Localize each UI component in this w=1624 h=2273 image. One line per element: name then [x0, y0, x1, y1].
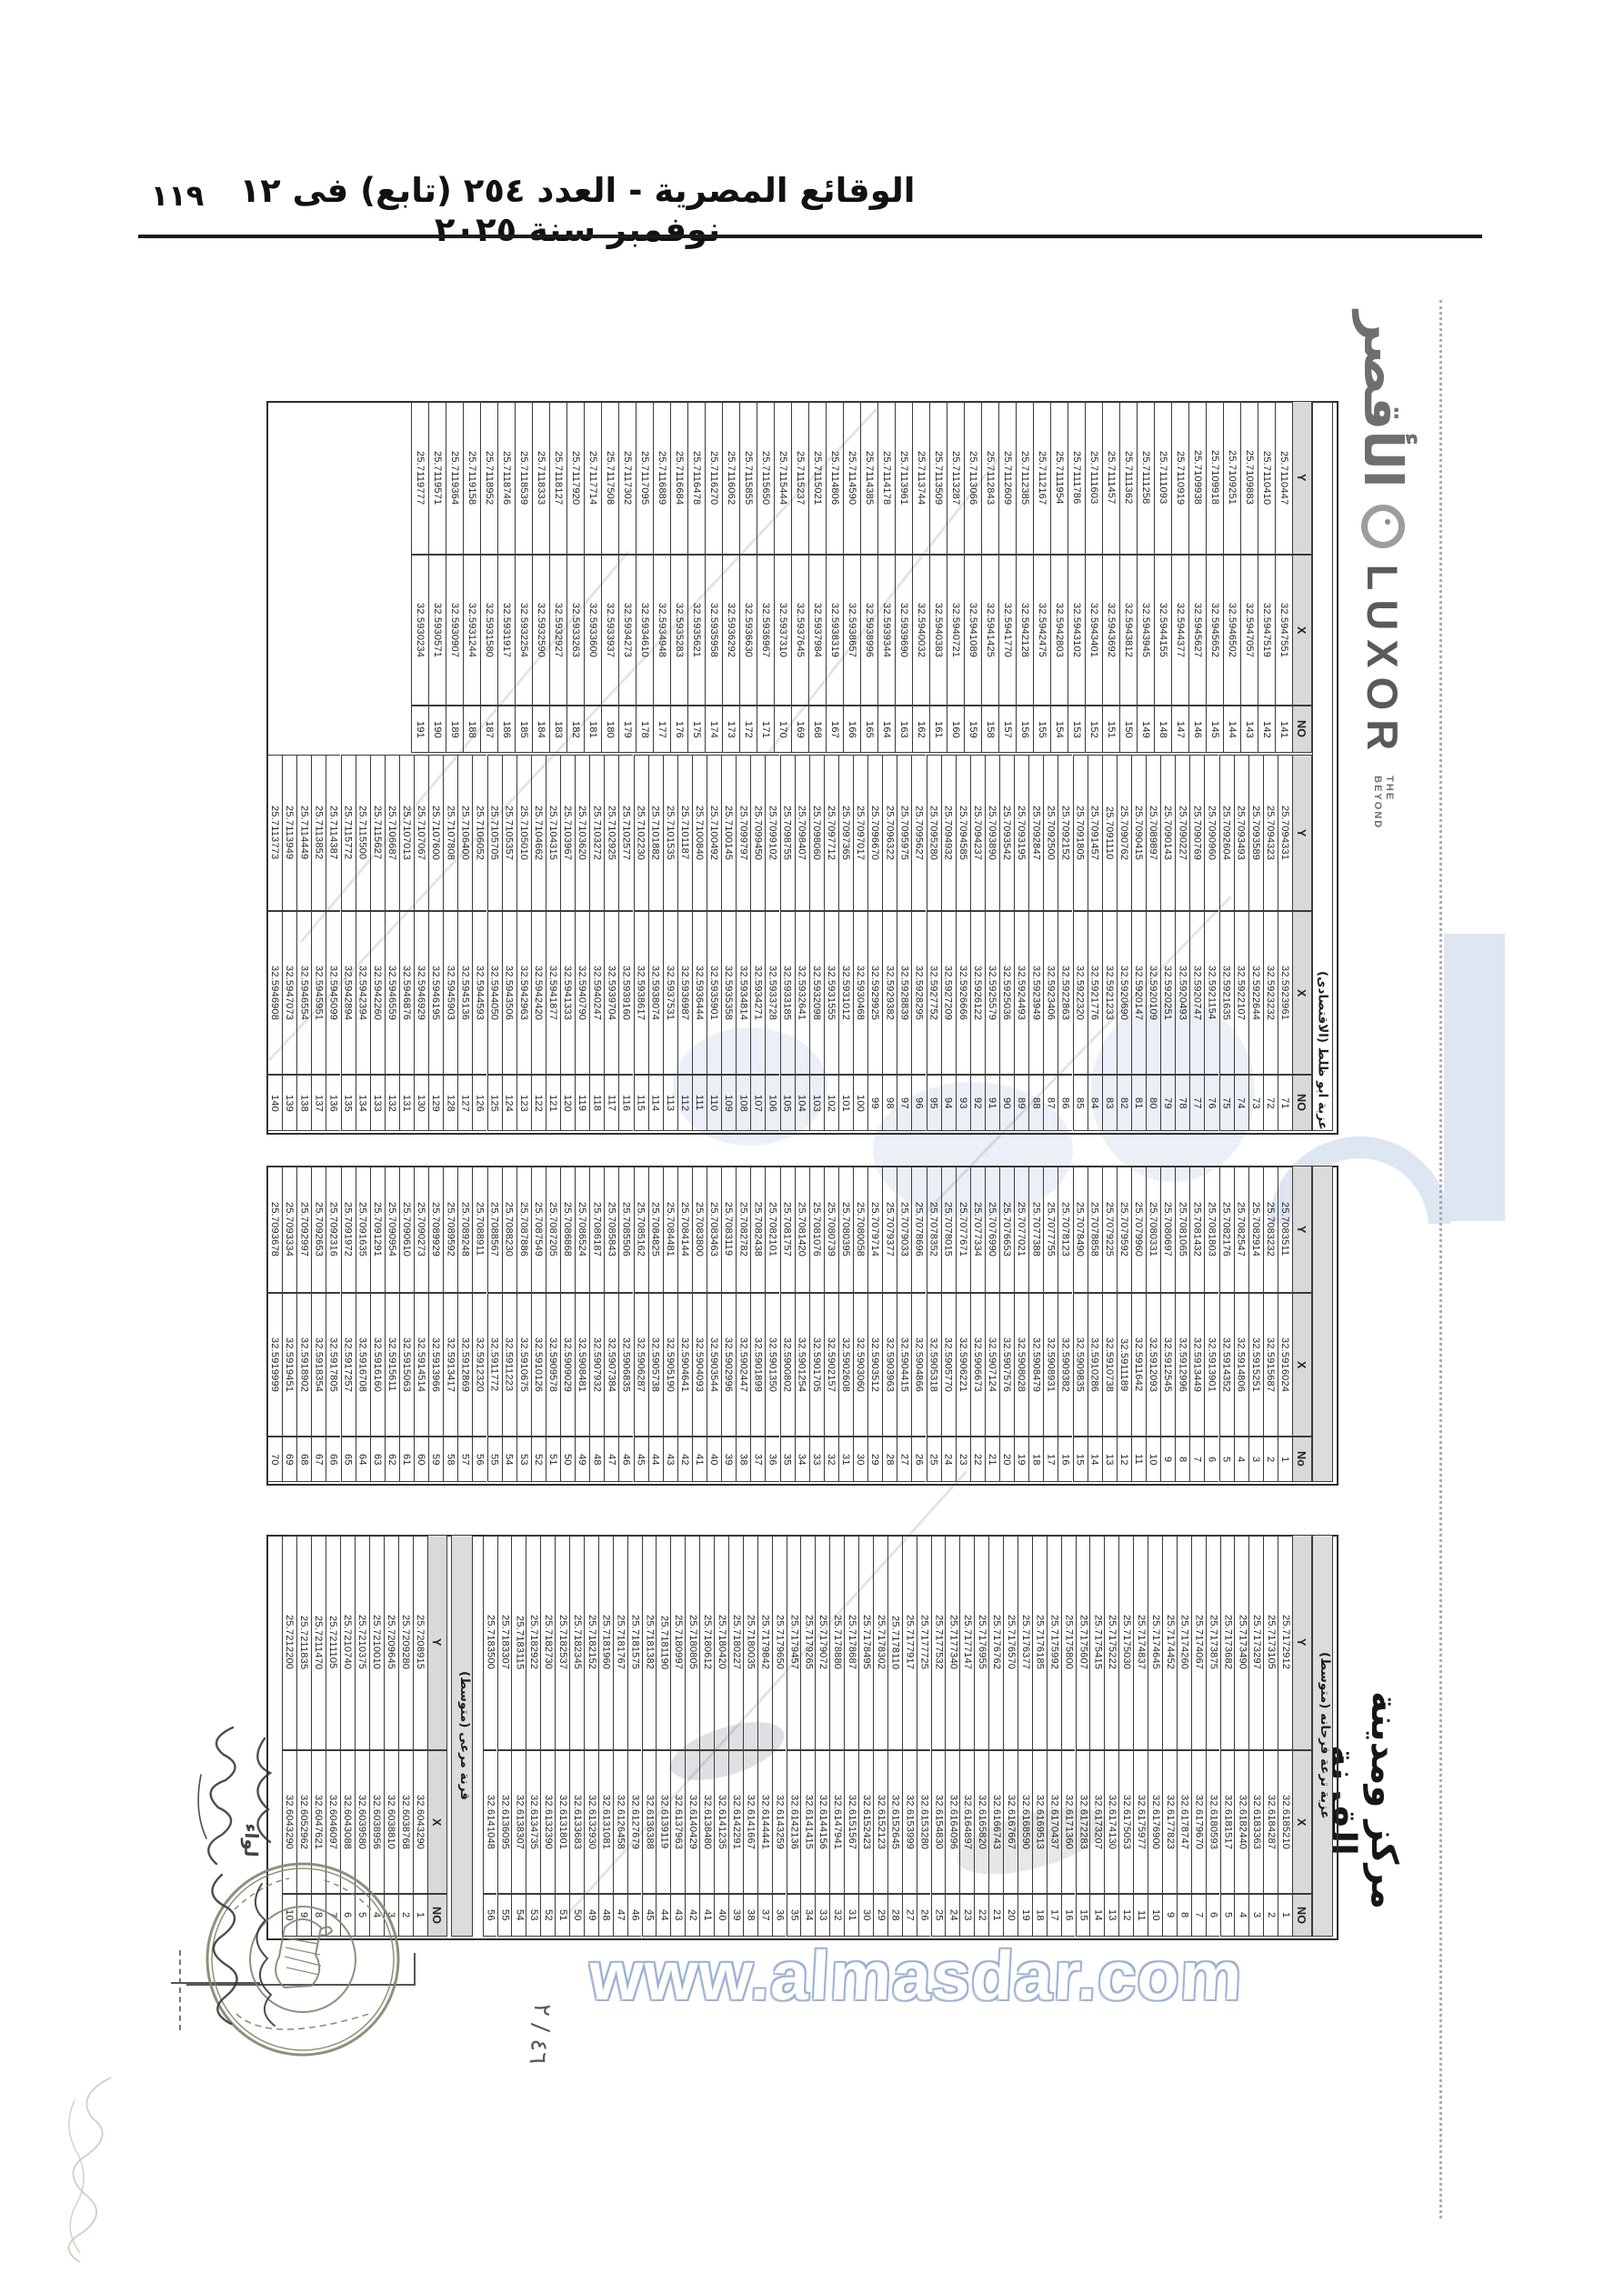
y-value: 25.7090227 [1176, 755, 1189, 911]
x-value: 32.5944377 [1172, 555, 1188, 706]
x-value: 32.5943945 [1138, 555, 1154, 706]
y-value: 25.7178495 [859, 1535, 873, 1750]
pencil-scribble [47, 2073, 129, 2264]
coordinate-row: 25.717464532.617690010 [1148, 1535, 1162, 1937]
header-cell: No [1293, 1437, 1312, 1482]
x-value: 32.5926122 [971, 911, 985, 1075]
x-value: 32.5909029 [561, 1293, 575, 1437]
y-value: 25.7110410 [1258, 401, 1275, 555]
coordinate-row: 25.708380032.590409341 [692, 1166, 707, 1482]
y-value: 25.7211835 [297, 1535, 311, 1750]
coordinate-row: 25.711730232.5934273179 [618, 401, 636, 753]
y-value: 25.7115237 [792, 401, 808, 555]
point-number: 142 [1258, 706, 1275, 753]
coordinate-row: 25.711577232.5942894135 [341, 755, 356, 1131]
x-value: 32.6043290 [414, 1750, 427, 1894]
x-value: 32.6131081 [599, 1750, 613, 1894]
x-value: 32.6153280 [917, 1750, 931, 1894]
point-number: 2 [1264, 1437, 1278, 1482]
x-value: 32.6172283 [1077, 1750, 1090, 1894]
coordinate-row: 25.710257732.5939160116 [618, 755, 633, 1131]
y-value: 25.7095975 [897, 755, 911, 911]
point-number: 57 [458, 1437, 472, 1482]
coordinate-row: 25.708243832.590189937 [750, 1166, 765, 1482]
x-value: 32.5934948 [654, 555, 670, 706]
point-number: 22 [975, 1894, 988, 1937]
x-value: 32.6171360 [1062, 1750, 1076, 1894]
coordinate-row: 25.708788632.591067553 [516, 1166, 531, 1482]
coordinate-row: 25.711238532.5942128156 [1016, 401, 1033, 753]
x-value: 32.6185210 [1278, 1750, 1292, 1894]
coordinate-row: 25.711109332.5944155148 [1154, 401, 1171, 753]
point-number: 86 [1058, 1075, 1072, 1131]
x-value: 32.5912320 [473, 1293, 486, 1437]
coordinate-row: 25.709076232.592069082 [1117, 755, 1131, 1131]
coordinate-row: 25.709129132.591616063 [370, 1166, 385, 1482]
header-cell: Y [1293, 1535, 1312, 1750]
point-number: 141 [1276, 706, 1292, 753]
y-value: 25.7116478 [688, 401, 705, 555]
column-header: YXNO [427, 1535, 447, 1937]
x-value: 32.5923961 [1278, 911, 1292, 1075]
x-value: 32.6175053 [1119, 1750, 1133, 1894]
coordinate-row: 25.708106532.59129968 [1175, 1166, 1189, 1482]
coordinate-row: 25.711688932.5934948177 [653, 401, 670, 753]
point-number: 85 [1074, 1075, 1088, 1131]
point-number: 24 [942, 1437, 956, 1482]
y-value: 25.7211105 [326, 1535, 340, 1750]
y-value: 25.7078123 [1058, 1166, 1072, 1293]
y-value: 25.7179265 [801, 1535, 815, 1750]
x-value: 32.5920690 [1118, 911, 1131, 1075]
coordinate-row: 25.717753232.615483025 [931, 1535, 946, 1937]
x-value: 32.5942803 [1051, 555, 1068, 706]
y-value: 25.7081065 [1176, 1166, 1189, 1293]
y-value: 25.7098060 [810, 755, 824, 911]
y-value: 25.7176570 [1004, 1535, 1018, 1750]
x-value: 32.5921635 [1220, 911, 1234, 1075]
coordinate-row: 25.710988332.5947057143 [1240, 401, 1258, 753]
y-value: 25.7091457 [1088, 755, 1102, 911]
point-number: 134 [356, 1075, 370, 1131]
y-value: 25.7115021 [809, 401, 826, 555]
x-value: 32.6141667 [744, 1750, 757, 1894]
crop-mark [414, 1953, 416, 1986]
coordinate-row: 25.709701732.5930468100 [853, 755, 867, 1131]
x-value: 32.5943401 [1086, 555, 1102, 706]
point-number: 59 [429, 1437, 443, 1482]
y-value: 25.7083119 [722, 1166, 736, 1293]
x-value: 32.5945136 [458, 911, 472, 1075]
y-value: 25.7101187 [678, 755, 692, 911]
y-value: 25.7180997 [671, 1535, 685, 1750]
x-value: 32.5937645 [792, 555, 808, 706]
point-number: 136 [326, 1075, 340, 1131]
x-value: 32.5936444 [693, 911, 707, 1075]
y-value: 25.7085843 [605, 1166, 618, 1293]
y-value: 25.7103967 [561, 755, 575, 911]
point-number: 32 [830, 1894, 844, 1937]
point-number: 9 [1163, 1894, 1177, 1937]
coordinate-row: 25.717599232.617043717 [1047, 1535, 1061, 1937]
coordinate-row: 25.708278232.590244738 [736, 1166, 750, 1482]
y-value: 25.7081432 [1190, 1166, 1204, 1293]
y-value: 25.7085162 [635, 1166, 648, 1293]
coordinate-row: 25.717772532.615328026 [917, 1535, 931, 1937]
coordinate-row: 25.709493232.592720994 [941, 755, 956, 1131]
x-value: 32.5935958 [706, 555, 722, 706]
y-value: 25.7180805 [686, 1535, 699, 1750]
table-title-strip: عزبة ابو ظلط (الاقتصادى) [1312, 401, 1333, 1131]
x-value: 32.5916708 [356, 1293, 370, 1437]
point-number: 4 [1235, 1437, 1248, 1482]
x-value: 32.5928295 [912, 911, 926, 1075]
coordinate-row: 25.707812332.590938216 [1058, 1166, 1072, 1482]
column-header: YXNO [1292, 401, 1312, 753]
x-value: 32.5941089 [965, 555, 981, 706]
x-value: 32.5903512 [868, 1293, 882, 1437]
point-number: 53 [517, 1437, 531, 1482]
x-value: 32.5922107 [1235, 911, 1248, 1075]
y-value: 25.7209645 [385, 1535, 398, 1750]
x-value: 32.6136095 [498, 1750, 512, 1894]
coordinate-row: 25.717907232.614415633 [815, 1535, 829, 1937]
x-value: 32.5914352 [1220, 1293, 1234, 1437]
point-number: 152 [1086, 706, 1102, 753]
coordinate-row: 25.717618532.616951318 [1032, 1535, 1047, 1937]
y-value: 25.7178687 [845, 1535, 858, 1750]
x-value: 32.5925036 [1000, 911, 1014, 1075]
y-value: 25.7115855 [740, 401, 757, 555]
y-value: 25.7090273 [415, 1166, 428, 1293]
x-value: 32.5930571 [429, 555, 446, 706]
x-value: 32.6153999 [903, 1750, 917, 1894]
y-value: 25.7175222 [1105, 1535, 1118, 1750]
x-value: 32.5901254 [796, 1293, 809, 1437]
point-number: 28 [888, 1894, 902, 1937]
x-value: 32.5938074 [649, 911, 663, 1075]
x-value: 32.6182440 [1235, 1750, 1248, 1894]
point-number: 71 [1278, 1075, 1292, 1131]
point-number: 170 [775, 706, 791, 753]
header-cell: Y [428, 1535, 447, 1750]
x-value: 32.5942260 [371, 911, 385, 1075]
coordinate-row: 25.708210132.590135036 [765, 1166, 779, 1482]
point-number: 21 [989, 1894, 1003, 1937]
y-value: 25.7119571 [429, 401, 446, 555]
point-number: 181 [585, 706, 601, 753]
coordinate-row: 25.711377332.5946908140 [267, 755, 282, 1131]
coordinate-row: 25.711750832.5933937180 [601, 401, 618, 753]
y-value: 25.7117508 [602, 401, 618, 555]
x-value: 32.5937531 [664, 911, 677, 1075]
coordinate-row: 25.710760032.5946195129 [428, 755, 443, 1131]
y-value: 25.7105357 [503, 755, 516, 911]
coordinate-row: 25.708107632.590170533 [809, 1166, 824, 1482]
coordinate-row: 25.709458532.592666693 [956, 755, 970, 1131]
coordinate-row: 25.710668732.5946559132 [385, 755, 399, 1131]
header-cell: X [1293, 1750, 1312, 1894]
x-value: 32.5926666 [957, 911, 970, 1075]
point-number: 51 [546, 1437, 560, 1482]
y-value: 25.7092604 [1220, 755, 1234, 911]
x-value: 32.6169513 [1033, 1750, 1047, 1894]
point-number: 46 [628, 1894, 642, 1937]
x-value: 32.5932641 [796, 911, 809, 1075]
y-value: 25.7110447 [1276, 401, 1292, 555]
point-number: 92 [971, 1075, 985, 1131]
coordinate-row: 25.708005832.590306030 [853, 1166, 867, 1482]
point-number: 80 [1147, 1075, 1160, 1131]
point-number: 11 [1134, 1894, 1148, 1937]
point-number: 69 [283, 1437, 296, 1482]
x-value: 32.6141235 [715, 1750, 728, 1894]
x-value: 32.6179670 [1192, 1750, 1206, 1894]
x-value: 32.5932590 [533, 555, 549, 706]
page-number: ١١٩ [136, 178, 218, 213]
point-number: 184 [533, 706, 549, 753]
coordinate-row: 25.711396132.5939690163 [895, 401, 912, 753]
y-value: 25.7114385 [861, 401, 877, 555]
x-value: 32.5906287 [635, 1293, 648, 1437]
x-value: 32.5945652 [1207, 555, 1223, 706]
point-number: 105 [781, 1075, 795, 1131]
header-rule [138, 235, 1482, 238]
header-cell: X [428, 1750, 447, 1894]
y-value: 25.7092997 [297, 1166, 311, 1293]
x-value: 32.5935621 [688, 555, 705, 706]
x-value: 32.5939690 [896, 555, 912, 706]
y-value: 25.7181767 [614, 1535, 627, 1750]
y-value: 25.7091291 [371, 1166, 385, 1293]
point-number: 124 [503, 1075, 516, 1131]
y-value: 25.7086868 [561, 1166, 575, 1293]
coordinate-row: 25.718176732.612645847 [613, 1535, 627, 1937]
coordinate-row: 25.708073932.590215732 [824, 1166, 838, 1482]
point-number: 2 [1264, 1894, 1278, 1937]
x-value: 32.5943102 [1068, 555, 1085, 706]
point-number: 5 [1221, 1894, 1235, 1937]
point-number: 17 [1048, 1894, 1061, 1937]
coordinate-row: 25.717984232.614444137 [757, 1535, 772, 1937]
point-number: 52 [532, 1437, 546, 1482]
point-number: 48 [599, 1894, 613, 1937]
table-title: قرنة مرعى (متوسط) [457, 1671, 472, 1800]
point-number: 33 [810, 1437, 824, 1482]
point-number: 63 [371, 1437, 385, 1482]
point-number: 72 [1264, 1075, 1278, 1131]
point-number: 26 [917, 1894, 931, 1937]
point-number: 128 [444, 1075, 457, 1131]
x-value: 32.5935358 [722, 911, 736, 1075]
x-value: 32.5942475 [1034, 555, 1050, 706]
point-number: 100 [854, 1075, 867, 1131]
coordinate-row: 25.717965032.614325936 [772, 1535, 787, 1937]
y-value: 25.7092500 [1044, 755, 1058, 911]
coordinate-row: 25.710431532.5941877121 [546, 755, 560, 1131]
x-value: 32.6173207 [1090, 1750, 1104, 1894]
coordinate-row: 25.720891532.60432901 [413, 1535, 427, 1937]
y-value: 25.7093890 [986, 755, 999, 911]
coordinate-row: 25.717888032.614794132 [829, 1535, 844, 1937]
coordinate-row: 25.717945732.614213635 [787, 1535, 801, 1937]
x-value: 32.5901350 [766, 1293, 779, 1437]
y-value: 25.7111954 [1051, 401, 1068, 555]
coordinate-row: 25.709349332.592210774 [1234, 755, 1248, 1131]
point-number: 68 [297, 1437, 311, 1482]
x-value: 32.5920109 [1147, 911, 1160, 1075]
point-number: 178 [637, 706, 653, 753]
point-number: 18 [1033, 1894, 1047, 1937]
x-value: 32.5916160 [371, 1293, 385, 1437]
x-value: 32.5933937 [602, 555, 618, 706]
coordinate-row: 25.708033132.591209310 [1146, 1166, 1160, 1482]
point-number: 12 [1118, 1437, 1131, 1482]
x-value: 32.5911642 [1132, 1293, 1146, 1437]
x-value: 32.6165820 [975, 1750, 988, 1894]
handwritten-margin-note: ٤٦ / ٢ [524, 2002, 556, 2066]
y-value: 25.7107808 [444, 755, 457, 911]
x-value: 32.6170437 [1048, 1750, 1061, 1894]
y-value: 25.7173490 [1235, 1535, 1248, 1750]
x-value: 32.5910286 [1088, 1293, 1102, 1437]
point-number: 16 [1062, 1894, 1076, 1937]
y-value: 25.7089897 [1147, 755, 1160, 911]
x-value: 32.5908028 [1015, 1293, 1028, 1437]
point-number: 56 [473, 1437, 486, 1482]
y-value: 25.7176955 [975, 1535, 988, 1750]
x-value: 32.5907384 [605, 1293, 618, 1437]
coordinate-row: 25.710991832.5945652145 [1206, 401, 1223, 753]
y-value: 25.7092847 [1029, 755, 1043, 911]
x-value: 32.5909382 [1058, 1293, 1072, 1437]
coordinate-row: 25.711585532.5936630172 [739, 401, 757, 753]
point-number: 144 [1224, 706, 1240, 753]
x-value: 32.5911772 [488, 1293, 502, 1437]
y-value: 25.7182730 [541, 1535, 555, 1750]
x-value: 32.5902157 [825, 1293, 838, 1437]
y-value: 25.7082101 [766, 1166, 779, 1293]
point-number: 21 [986, 1437, 999, 1482]
coordinate-row: 25.710049232.5935901110 [707, 755, 721, 1131]
coordinate-row: 25.711417832.5939344164 [877, 401, 895, 753]
x-value: 32.5928839 [897, 911, 911, 1075]
luxor-logo-latin: LUXOR [1358, 565, 1408, 760]
x-value: 32.5942394 [356, 911, 370, 1075]
x-value: 32.5942128 [1017, 555, 1033, 706]
x-value: 32.5942963 [517, 911, 531, 1075]
coordinate-row: 25.717637732.616859019 [1018, 1535, 1032, 1937]
y-value: 25.7109251 [1224, 401, 1240, 555]
coordinate-row: 25.708069732.59125459 [1160, 1166, 1175, 1482]
y-value: 25.7175800 [1062, 1535, 1076, 1750]
coordinate-row: 25.718003532.614166738 [743, 1535, 757, 1937]
point-number: 5 [1220, 1437, 1234, 1482]
point-number: 44 [657, 1894, 670, 1937]
x-value: 32.6164096 [946, 1750, 959, 1894]
district-heading: مركز ومدينة القرنة [1348, 1642, 1405, 1958]
y-value: 25.7113509 [930, 401, 947, 555]
coordinate-row: 25.711895232.5931580187 [480, 401, 497, 753]
coordinate-row: 25.709014332.592025179 [1160, 755, 1175, 1131]
y-value: 25.7117920 [567, 401, 584, 555]
coordinate-row: 25.708992932.591396659 [428, 1166, 443, 1482]
x-value: 32.5945903 [444, 911, 457, 1075]
coordinate-row: 25.707702132.590802819 [1014, 1166, 1028, 1482]
point-number: 157 [999, 706, 1016, 753]
point-number: 166 [844, 706, 860, 753]
coordinate-row: 25.711502132.5937984168 [808, 401, 826, 753]
point-number: 129 [429, 1075, 443, 1131]
coordinate-row: 25.710570532.5944050125 [487, 755, 502, 1131]
point-number: 66 [326, 1437, 340, 1482]
y-value: 25.7116062 [723, 401, 739, 555]
coordinate-row: 25.717676232.616674321 [988, 1535, 1003, 1937]
point-number: 123 [517, 1075, 531, 1131]
x-value: 32.6136388 [643, 1750, 657, 1894]
coordinate-row: 25.711833332.5932590184 [532, 401, 549, 753]
point-number: 10 [1148, 1894, 1162, 1937]
coordinate-row: 25.718099732.613796343 [670, 1535, 685, 1937]
coordinate-row: 25.717329732.61833633 [1248, 1535, 1263, 1937]
y-value: 25.7116889 [654, 401, 670, 555]
y-value: 25.7081803 [1205, 1166, 1218, 1293]
coordinate-row: 25.708584332.590738447 [604, 1166, 618, 1482]
coordinate-row: 25.709389032.592557991 [985, 755, 999, 1131]
x-value: 32.5910126 [532, 1293, 546, 1437]
point-number: 13 [1103, 1437, 1117, 1482]
x-value: 32.5931580 [481, 555, 497, 706]
y-value: 25.7173682 [1221, 1535, 1235, 1750]
coordinate-row: 25.711444932.5946554138 [296, 755, 311, 1131]
coordinate-row: 25.709562732.592829596 [911, 755, 926, 1131]
y-value: 25.7093195 [1015, 755, 1028, 911]
y-value: 25.7112843 [982, 401, 998, 555]
point-number: 46 [619, 1437, 633, 1482]
point-number: 138 [297, 1075, 311, 1131]
y-value: 25.7180035 [744, 1535, 757, 1750]
coordinate-row: 25.717541532.617320714 [1089, 1535, 1104, 1937]
point-number: 70 [268, 1437, 282, 1482]
y-value: 25.7180227 [729, 1535, 743, 1750]
x-value: 32.6151567 [845, 1750, 858, 1894]
point-number: 87 [1044, 1075, 1058, 1131]
x-value: 32.5944593 [473, 911, 486, 1075]
point-number: 38 [737, 1437, 750, 1482]
coordinate-row: 25.711627032.5935958174 [705, 401, 722, 753]
x-value: 32.5946876 [400, 911, 414, 1075]
x-value: 32.5906221 [957, 1293, 970, 1437]
point-number: 47 [605, 1437, 618, 1482]
scanned-gazette-page: الوقائع المصرية - العدد ٢٥٤ (تابع) فى ١٢… [0, 0, 1624, 2273]
x-value: 32.5946908 [268, 911, 282, 1075]
y-value: 25.7084825 [649, 1166, 663, 1293]
y-value: 25.7177917 [903, 1535, 917, 1750]
point-number: 191 [412, 706, 428, 753]
x-value: 32.5940247 [590, 911, 604, 1075]
y-value: 25.7114449 [297, 755, 311, 911]
coordinate-row: 25.709667032.592992599 [867, 755, 882, 1131]
point-number: 131 [400, 1075, 414, 1131]
point-number: 23 [957, 1437, 970, 1482]
point-number: 115 [635, 1075, 648, 1131]
scan-fold-line [1439, 300, 1442, 2218]
y-value: 25.7077755 [1044, 1166, 1058, 1293]
point-number: 126 [473, 1075, 486, 1131]
point-number: 98 [883, 1075, 897, 1131]
y-value: 25.7089929 [429, 1166, 443, 1293]
y-value: 25.7076990 [986, 1166, 999, 1293]
